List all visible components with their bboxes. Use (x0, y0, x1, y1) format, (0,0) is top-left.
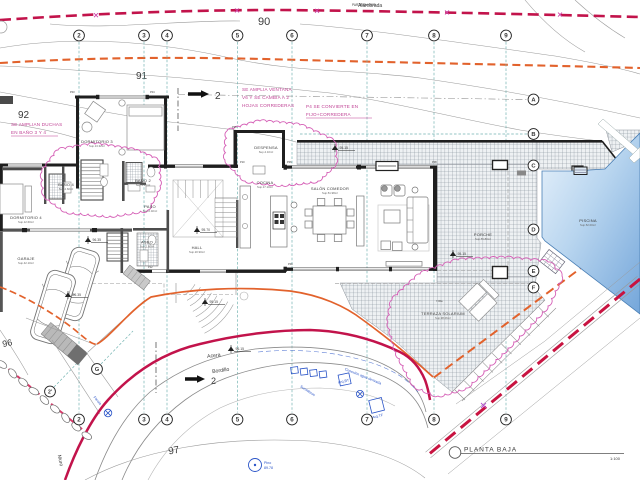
svg-text:7.00a: 7.00a (436, 299, 443, 303)
svg-text:9: 9 (504, 33, 508, 40)
svg-text:90: 90 (258, 16, 270, 28)
svg-text:96.15: 96.15 (236, 347, 245, 351)
svg-text:G: G (95, 367, 100, 373)
svg-text:7: 7 (365, 417, 369, 424)
svg-text:96.35: 96.35 (93, 238, 102, 242)
svg-text:95.15: 95.15 (458, 252, 467, 256)
svg-text:92: 92 (18, 110, 30, 121)
svg-text:2: 2 (211, 376, 216, 386)
svg-text:P10: P10 (240, 160, 245, 164)
svg-text:P03: P03 (70, 90, 75, 94)
svg-text:Sup.51.98m²: Sup.51.98m² (322, 191, 338, 195)
svg-text:FIJO+CORREDERA: FIJO+CORREDERA (306, 112, 352, 117)
svg-text:95.15: 95.15 (340, 146, 349, 150)
svg-text:P06: P06 (287, 160, 292, 164)
svg-text:Sup.4.60m²: Sup.4.60m² (59, 187, 74, 191)
svg-text:Sup.20.90m²: Sup.20.90m² (189, 250, 205, 254)
svg-text:96.35: 96.35 (73, 293, 82, 297)
svg-text:95.15: 95.15 (210, 300, 219, 304)
svg-text:P08: P08 (432, 160, 437, 164)
svg-text:Sup.6.40m²: Sup.6.40m² (143, 209, 158, 213)
svg-text:4: 4 (165, 33, 169, 40)
svg-text:96: 96 (1, 337, 13, 349)
svg-text:B: B (531, 132, 535, 138)
svg-text:8: 8 (432, 33, 436, 40)
svg-text:2': 2' (48, 390, 52, 396)
svg-text:95.70: 95.70 (202, 228, 211, 232)
svg-text:2: 2 (77, 33, 81, 40)
svg-text:4: 4 (165, 417, 169, 424)
svg-text:Sup.4.95m²: Sup.4.95m² (136, 183, 151, 187)
svg-text:Sup.55.80m²: Sup.55.80m² (475, 237, 491, 241)
svg-text:8: 8 (432, 417, 436, 424)
svg-text:1:100: 1:100 (610, 456, 621, 461)
svg-text:7: 7 (365, 33, 369, 40)
svg-text:HOJAS CORREDERAS: HOJAS CORREDERAS (242, 103, 294, 108)
svg-text:SE AMPLIA VENTANA: SE AMPLIA VENTANA (242, 87, 293, 92)
svg-text:Sup.52.00m²: Sup.52.00m² (580, 223, 596, 227)
svg-text:5: 5 (236, 33, 240, 40)
svg-text:5: 5 (236, 417, 240, 424)
svg-text:6: 6 (290, 417, 294, 424)
svg-text:EN BAÑO 3 Y 4: EN BAÑO 3 Y 4 (11, 129, 46, 135)
svg-text:3: 3 (142, 417, 146, 424)
svg-text:V6 Y SE CAMBIA A 2: V6 Y SE CAMBIA A 2 (242, 95, 289, 100)
svg-text:SE AMPLIAN DUCHAS: SE AMPLIAN DUCHAS (11, 122, 62, 127)
svg-text:89.78: 89.78 (264, 466, 273, 470)
svg-text:PLANTA BAJA: PLANTA BAJA (464, 447, 517, 454)
svg-text:91: 91 (136, 71, 148, 82)
svg-text:9: 9 (504, 417, 508, 424)
svg-text:E: E (532, 269, 536, 275)
svg-text:Sup.13.32m²: Sup.13.32m² (89, 144, 105, 148)
svg-text:F: F (532, 286, 536, 292)
svg-text:D: D (531, 228, 535, 234)
svg-text:Sup.98.06m²: Sup.98.06m² (435, 316, 451, 320)
svg-text:3: 3 (142, 33, 146, 40)
svg-text:2: 2 (215, 91, 221, 102)
svg-text:P05: P05 (232, 125, 237, 129)
svg-text:P09: P09 (288, 262, 293, 266)
svg-text:2: 2 (77, 417, 81, 424)
svg-text:Alambrada: Alambrada (358, 3, 382, 9)
svg-text:Sup.12.60m²: Sup.12.60m² (18, 220, 34, 224)
svg-text:Sup.2.80m²: Sup.2.80m² (140, 244, 155, 248)
svg-text:Sup.4.10m²: Sup.4.10m² (259, 150, 274, 154)
svg-text:P04: P04 (150, 90, 155, 94)
svg-text:Sup.42.10m²: Sup.42.10m² (18, 261, 34, 265)
svg-text:Pino: Pino (264, 461, 271, 465)
svg-text:Sup.17.10m²: Sup.17.10m² (257, 185, 273, 189)
svg-text:P4 SE CONVIERTE EN: P4 SE CONVIERTE EN (306, 104, 358, 109)
svg-text:P12: P12 (148, 265, 153, 269)
svg-text:6: 6 (290, 33, 294, 40)
